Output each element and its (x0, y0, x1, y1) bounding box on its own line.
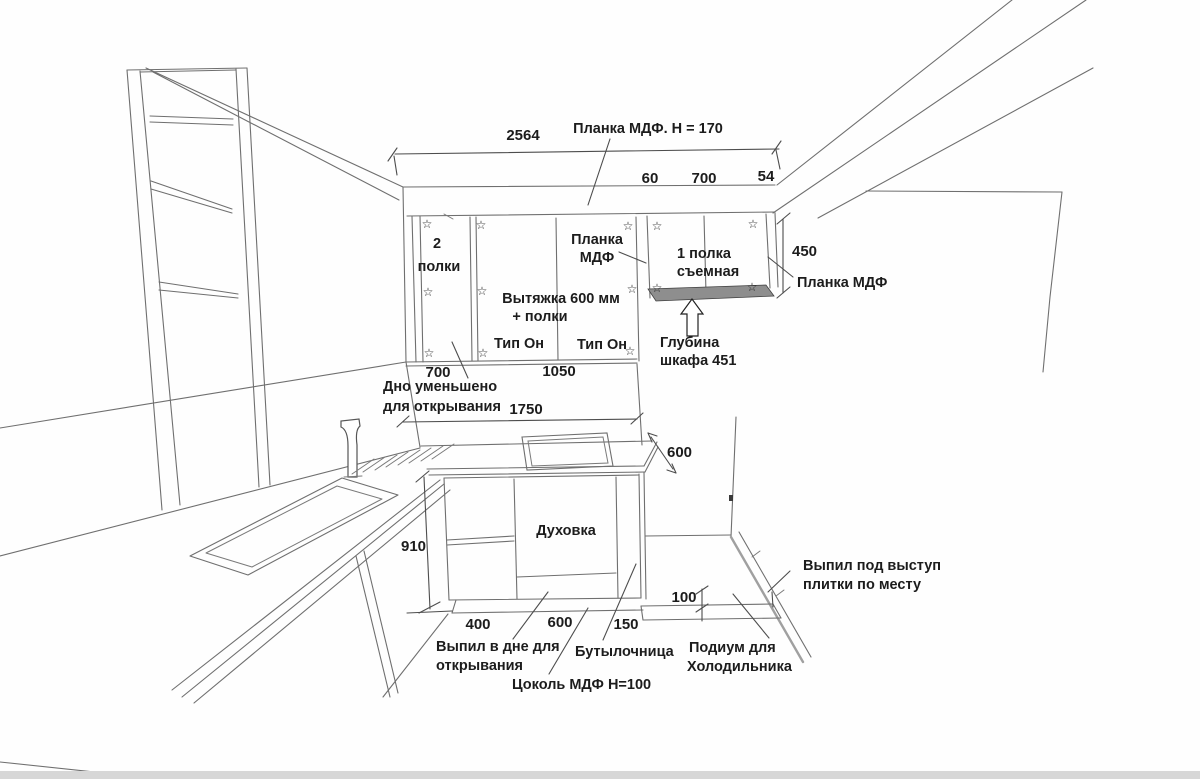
podium-end-tick (772, 592, 773, 607)
dim-2564: 2564 (506, 127, 540, 144)
podium-bottom-edge (643, 618, 781, 620)
base-face-top (444, 475, 639, 478)
shelf-1-under (150, 122, 233, 125)
right-niche-corner (731, 417, 736, 537)
star-icon: ☆ (423, 285, 434, 299)
star-icon: ☆ (627, 282, 638, 296)
left-counter-front-2 (182, 484, 444, 697)
label-center-batten-1: Планка (571, 232, 624, 248)
sketch-tick (444, 214, 453, 219)
label-plinth: Цоколь МДФ Н=100 (512, 677, 651, 693)
shelf-unit (127, 68, 270, 510)
drawer-divider-2 (447, 541, 514, 545)
cooktop-inner (528, 437, 608, 466)
star-icon: ☆ (422, 217, 433, 231)
right-soffit-line (866, 191, 1062, 192)
dim-450: 450 (792, 243, 817, 260)
star-icon: ☆ (478, 346, 489, 360)
label-bottom-cutout-2: открывания (436, 658, 523, 674)
dim-600-depth: 600 (667, 444, 692, 461)
leader-podium (733, 594, 769, 638)
shelf-1 (150, 116, 233, 119)
base-face-left (444, 478, 449, 600)
base-side-edge-2 (364, 551, 398, 693)
label-left-cab-2: полки (418, 259, 461, 275)
shelf-unit-left-edge (127, 70, 162, 510)
shelf-unit-right-inner (236, 69, 259, 487)
shelf-3 (159, 282, 238, 294)
right-wall-corner (1043, 192, 1062, 372)
floor-edge-front (383, 614, 448, 697)
dim-1050: 1050 (542, 363, 575, 380)
left-ceiling-line (146, 68, 403, 187)
shelf-3-under (159, 290, 238, 298)
plinth-left (452, 600, 456, 613)
label-left-cab-1: 2 (433, 236, 441, 252)
soffit-bottom-edge (407, 212, 775, 216)
label-cab-depth-2: шкафа 451 (660, 353, 736, 369)
counter-front-edge-2 (429, 472, 645, 475)
soffit-top-edge (403, 185, 775, 187)
star-icon: ☆ (652, 219, 663, 233)
dim-2564-line (395, 149, 779, 154)
star-icon: ☆ (652, 281, 663, 295)
kitchen-sketch-page: ☆ ☆ ☆ ☆ ☆ ☆ ☆ ☆ ☆ ☆ ☆ ☆ ☆ Планка МДФ. Н … (0, 0, 1200, 779)
label-top-batten: Планка МДФ. Н = 170 (573, 121, 723, 137)
upper-cab-left-stile (412, 216, 416, 362)
star-icon: ☆ (747, 280, 758, 294)
label-right-cab-1: 1 полка (677, 246, 732, 262)
drain-rack (352, 444, 454, 474)
ceiling-diagonal-3 (818, 68, 1093, 218)
dim-1750: 1750 (509, 401, 542, 418)
left-counter-front-3 (194, 490, 450, 703)
shelf-unit-top-inner (140, 70, 236, 72)
base-cabinets (444, 472, 646, 613)
shelf-2-under (151, 189, 232, 213)
drawer-divider (447, 536, 514, 540)
base-face-bottom (449, 598, 641, 600)
label-bottle-rack: Бутылочница (575, 644, 675, 660)
label-podium-2: Холодильника (687, 659, 793, 675)
hood-door-divider (556, 218, 558, 360)
back-wall-floor-line (645, 535, 731, 536)
label-tile-cutout-1: Выпил под выступ (803, 558, 941, 574)
leader-right-batten (768, 257, 793, 277)
dim-910: 910 (401, 538, 426, 555)
leader-bottom-reduced (452, 342, 468, 378)
left-ceiling-line-2 (153, 72, 399, 200)
labels: Планка МДФ. Н = 170 2564 60 700 54 2 пол… (383, 121, 941, 693)
counter-back-edge (421, 441, 652, 446)
dim-60: 60 (642, 170, 659, 187)
shelf-2 (151, 181, 232, 209)
dim-100: 100 (671, 589, 696, 606)
backsplash-right-edge (637, 364, 642, 445)
faucet-base (344, 476, 362, 477)
tile-edge-thin (739, 532, 811, 657)
label-hood-2: + полки (512, 309, 567, 325)
label-door-type-right: Тип Он (577, 337, 627, 353)
kitchen-perspective-drawing: ☆ ☆ ☆ ☆ ☆ ☆ ☆ ☆ ☆ ☆ ☆ ☆ ☆ Планка МДФ. Н … (0, 0, 1200, 779)
right-cab-left-edge (647, 216, 650, 298)
tile-tick-2 (776, 590, 784, 596)
oven-bottom-line (517, 573, 616, 577)
sink-basin (206, 486, 382, 567)
label-hood-1: Вытяжка 600 мм (502, 291, 620, 307)
faucet (341, 419, 360, 477)
shelf-unit-left-inner (140, 71, 180, 505)
wall-socket-mark (729, 495, 733, 501)
star-icon: ☆ (623, 219, 634, 233)
upper-cab-bottom (406, 359, 637, 362)
leader-tile-cutout (768, 571, 790, 592)
label-cab-depth-1: Глубина (660, 335, 720, 351)
dim-150: 150 (613, 616, 638, 633)
upper-cab-divider-1 (470, 217, 472, 361)
label-oven: Духовка (536, 523, 596, 539)
leader-top-batten (588, 139, 610, 205)
label-podium-1: Подиум для (689, 640, 776, 656)
left-corner-line (403, 187, 406, 362)
star-icon: ☆ (748, 217, 759, 231)
left-wall-mid-line (0, 362, 406, 428)
oven-section-left (514, 479, 517, 599)
leader-center-batten (619, 252, 646, 263)
tile-tick-1 (752, 551, 760, 557)
dim-400: 400 (465, 616, 490, 633)
label-right-batten: Планка МДФ (797, 275, 887, 291)
star-icon: ☆ (477, 284, 488, 298)
label-door-type-left: Тип Он (494, 336, 544, 352)
left-counter-front-1 (172, 480, 440, 690)
label-bottom-reduced-1: Дно уменьшено (383, 379, 497, 395)
label-bottom-reduced-2: для открывания (383, 399, 501, 415)
dim-54: 54 (758, 168, 775, 185)
label-center-batten-2: МДФ (580, 250, 615, 266)
dim-600-base: 600 (547, 614, 572, 631)
depth-up-arrow (681, 299, 703, 336)
oven-section-right (616, 477, 618, 598)
ceiling-diagonal-2 (773, 0, 1086, 213)
dim-1750-line (403, 419, 637, 422)
label-tile-cutout-2: плитки по месту (803, 577, 921, 593)
bottom-scan-band (0, 771, 1200, 779)
base-side-edge (356, 556, 390, 697)
label-bottom-cutout-1: Выпил в дне для (436, 639, 560, 655)
right-cab-right-edge (766, 214, 770, 288)
base-face-right (639, 474, 641, 598)
ceiling-diagonal-1 (777, 0, 1012, 185)
podium-left-end (641, 606, 643, 620)
star-icon: ☆ (424, 346, 435, 360)
dim-700-top: 700 (691, 170, 716, 187)
star-icon: ☆ (476, 218, 487, 232)
label-right-cab-2: съемная (677, 264, 739, 280)
